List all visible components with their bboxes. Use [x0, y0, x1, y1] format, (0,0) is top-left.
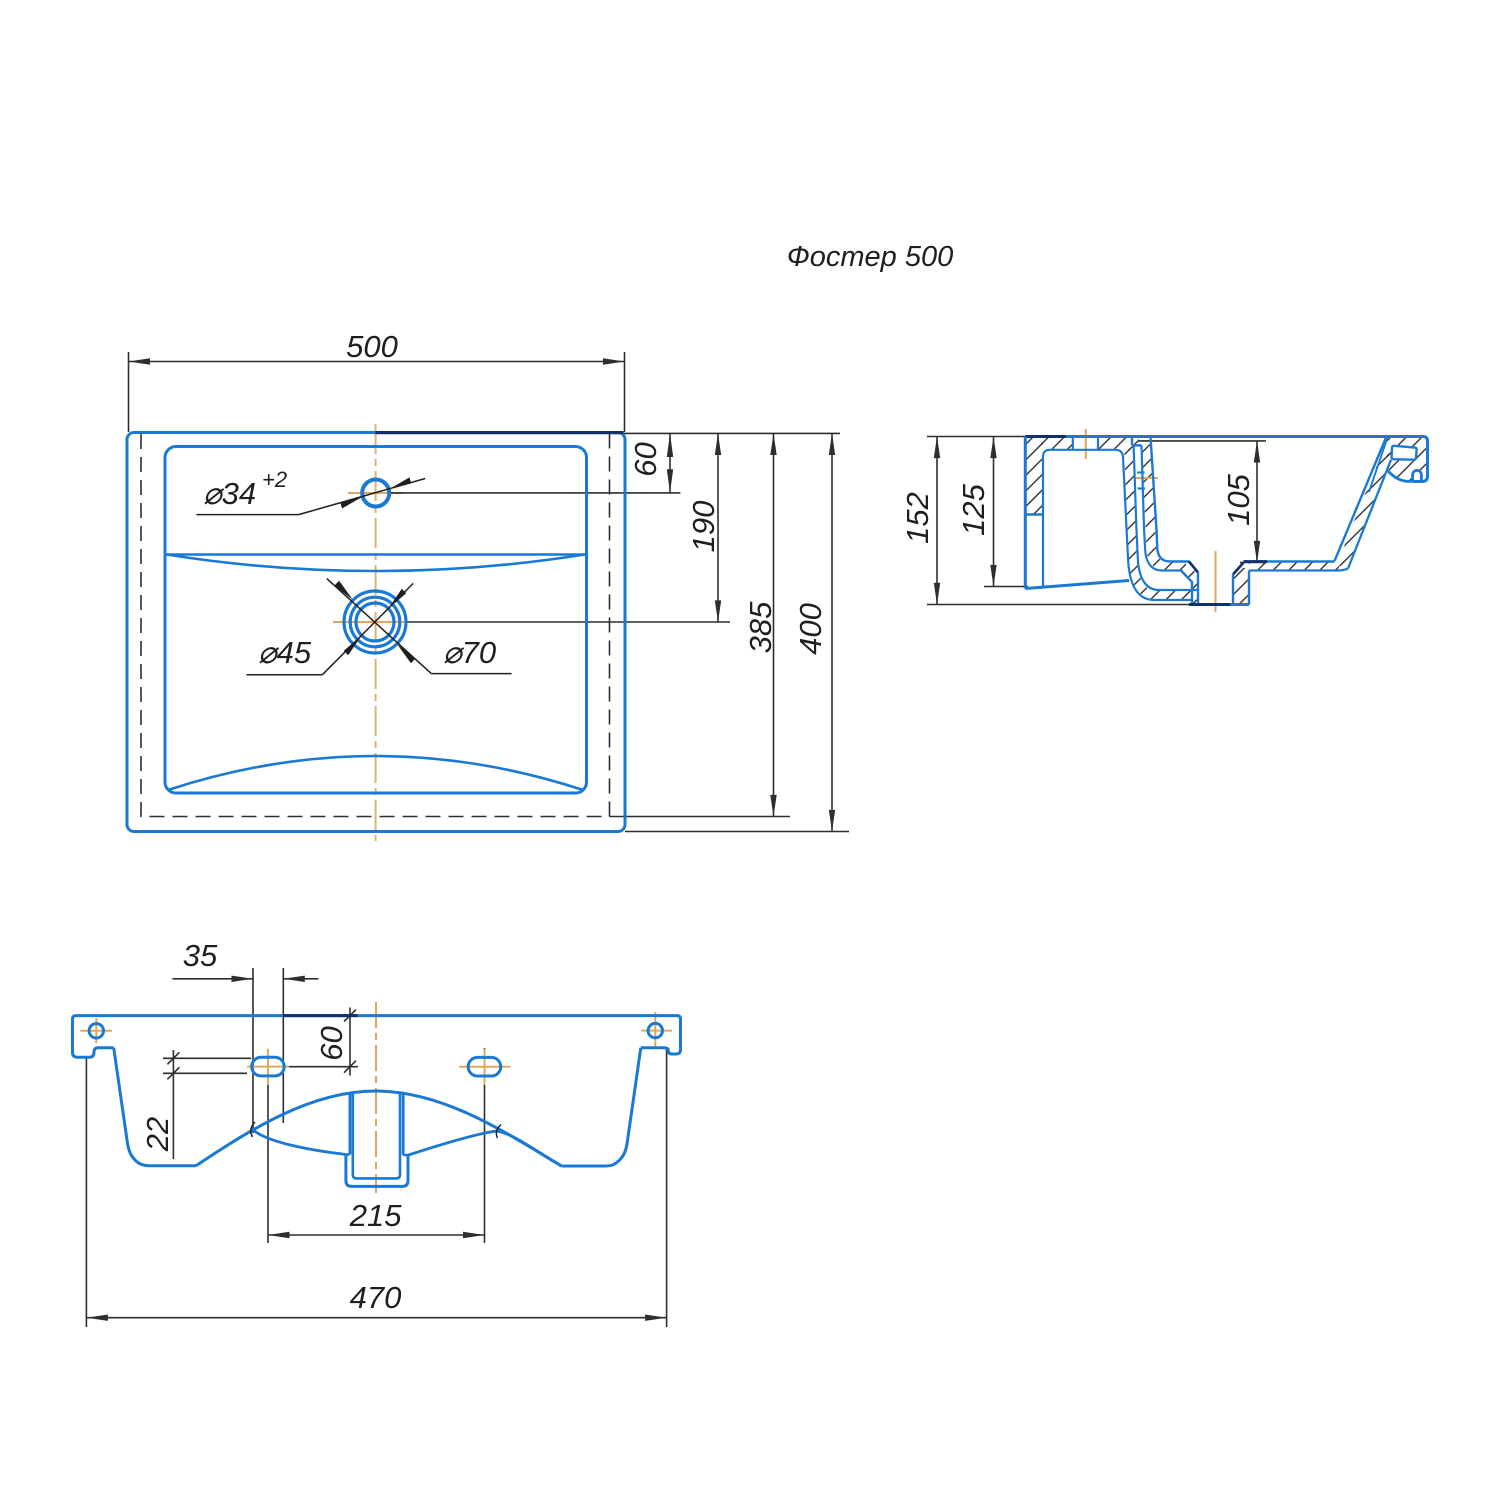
svg-text:⌀34: ⌀34 — [203, 476, 256, 511]
svg-text:Фостер 500: Фостер 500 — [787, 241, 954, 273]
svg-text:105: 105 — [1221, 473, 1256, 525]
svg-text:215: 215 — [349, 1198, 402, 1233]
svg-text:470: 470 — [350, 1280, 402, 1315]
svg-text:+2: +2 — [262, 467, 287, 492]
svg-text:500: 500 — [346, 329, 398, 364]
svg-text:35: 35 — [183, 938, 218, 973]
svg-text:125: 125 — [956, 483, 991, 535]
svg-text:385: 385 — [743, 601, 778, 653]
svg-text:22: 22 — [140, 1117, 175, 1152]
svg-text:190: 190 — [686, 501, 721, 553]
svg-text:60: 60 — [314, 1026, 349, 1060]
svg-text:⌀70: ⌀70 — [443, 635, 496, 670]
svg-text:400: 400 — [793, 603, 828, 655]
svg-text:152: 152 — [900, 492, 935, 544]
svg-text:⌀45: ⌀45 — [258, 635, 312, 670]
svg-text:60: 60 — [628, 442, 663, 476]
